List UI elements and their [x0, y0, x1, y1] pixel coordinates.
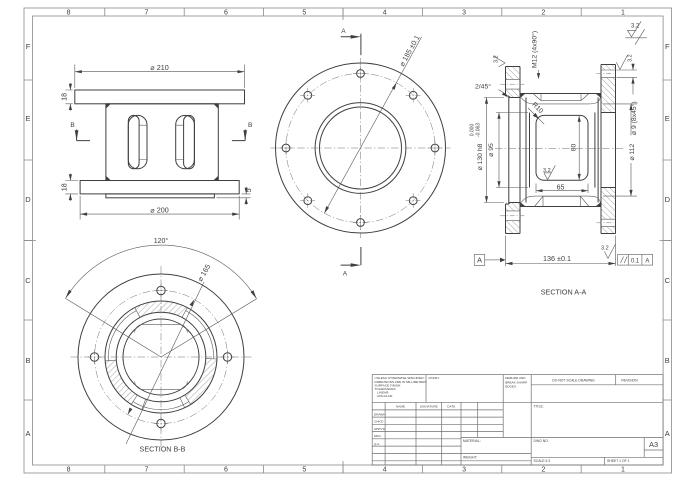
svg-text:A3: A3: [649, 440, 658, 449]
svg-text:80: 80: [571, 144, 578, 152]
svg-text:A: A: [343, 270, 348, 277]
svg-text:7: 7: [145, 467, 149, 474]
svg-text:⌀ 95: ⌀ 95: [488, 143, 495, 157]
svg-text:DRAWN: DRAWN: [374, 412, 386, 416]
svg-text:2: 2: [542, 10, 546, 17]
svg-text:D: D: [25, 195, 31, 204]
svg-text:3.2: 3.2: [601, 246, 609, 252]
svg-text:A: A: [477, 256, 482, 265]
svg-text:SHEET 1 OF 1: SHEET 1 OF 1: [607, 459, 630, 463]
svg-text:APPV'D: APPV'D: [374, 427, 386, 431]
svg-text:3.2: 3.2: [627, 54, 633, 62]
svg-text:18: 18: [60, 183, 69, 191]
svg-text:-0.063: -0.063: [475, 123, 481, 137]
svg-text:5: 5: [302, 10, 306, 17]
svg-text:3: 3: [462, 10, 466, 17]
svg-text:136 ±0.1: 136 ±0.1: [543, 254, 571, 263]
svg-text:FINISH:: FINISH:: [429, 376, 440, 380]
svg-text:CHK'D: CHK'D: [374, 420, 384, 424]
svg-text:1: 1: [621, 467, 625, 474]
svg-text:5: 5: [302, 467, 306, 474]
svg-text:⌀ 210: ⌀ 210: [150, 63, 168, 72]
svg-text:8: 8: [67, 467, 71, 474]
svg-text:DO NOT SCALE DRAWING: DO NOT SCALE DRAWING: [552, 379, 595, 383]
svg-text:⌀ 112: ⌀ 112: [629, 143, 636, 160]
svg-text:7: 7: [145, 10, 149, 17]
svg-text:A: A: [341, 28, 346, 35]
svg-text:ANGULAR:: ANGULAR:: [377, 394, 393, 398]
svg-text:⌀ 130 h8: ⌀ 130 h8: [477, 143, 484, 170]
svg-text:8: 8: [67, 10, 71, 17]
svg-text:E: E: [25, 114, 30, 123]
svg-text:A: A: [25, 429, 30, 438]
svg-text:2: 2: [542, 467, 546, 474]
svg-text:D: D: [665, 195, 671, 204]
svg-text:65: 65: [557, 184, 565, 191]
svg-text:M12 (4x90°): M12 (4x90°): [531, 31, 539, 68]
svg-text:120°: 120°: [154, 237, 169, 245]
svg-text:SECTION B-B: SECTION B-B: [140, 444, 186, 453]
svg-text:3.2: 3.2: [631, 24, 640, 30]
svg-text:WEIGHT:: WEIGHT:: [463, 456, 477, 460]
svg-text:MFG: MFG: [374, 434, 381, 438]
svg-text:2/45°: 2/45°: [475, 83, 491, 91]
svg-text:A: A: [665, 429, 670, 438]
svg-text:B: B: [665, 356, 670, 365]
svg-text:Q.A: Q.A: [374, 442, 380, 446]
svg-text:B: B: [25, 356, 30, 365]
svg-text:EDGES: EDGES: [505, 385, 516, 389]
svg-text:B: B: [248, 122, 253, 129]
svg-text:TITLE:: TITLE:: [534, 405, 544, 409]
svg-text:6: 6: [224, 10, 228, 17]
svg-text:DWG NO.: DWG NO.: [534, 439, 549, 443]
svg-text:0.1: 0.1: [631, 258, 640, 264]
svg-text:DATE: DATE: [447, 405, 455, 409]
svg-text:1: 1: [621, 10, 625, 17]
svg-text:C: C: [25, 276, 31, 285]
svg-text:SECTION A-A: SECTION A-A: [541, 288, 587, 297]
svg-text:A: A: [645, 258, 649, 264]
svg-text:3: 3: [462, 467, 466, 474]
svg-text:F: F: [26, 42, 31, 51]
svg-text:⌀ 200: ⌀ 200: [150, 205, 168, 214]
svg-text:4: 4: [383, 467, 387, 474]
svg-text:18: 18: [60, 93, 69, 101]
svg-text:6: 6: [224, 467, 228, 474]
svg-text:E: E: [665, 114, 670, 123]
svg-text:REVISION: REVISION: [621, 379, 638, 383]
svg-text:5: 5: [244, 188, 253, 192]
svg-text:SCALE:1:2: SCALE:1:2: [534, 459, 551, 463]
svg-text:NAME: NAME: [396, 405, 405, 409]
svg-text:MATERIAL:: MATERIAL:: [463, 439, 481, 443]
svg-text:B: B: [70, 122, 75, 129]
svg-text:F: F: [665, 42, 670, 51]
svg-text:SIGNATURE: SIGNATURE: [420, 405, 438, 409]
svg-text:4: 4: [383, 10, 387, 17]
svg-text:C: C: [665, 276, 671, 285]
